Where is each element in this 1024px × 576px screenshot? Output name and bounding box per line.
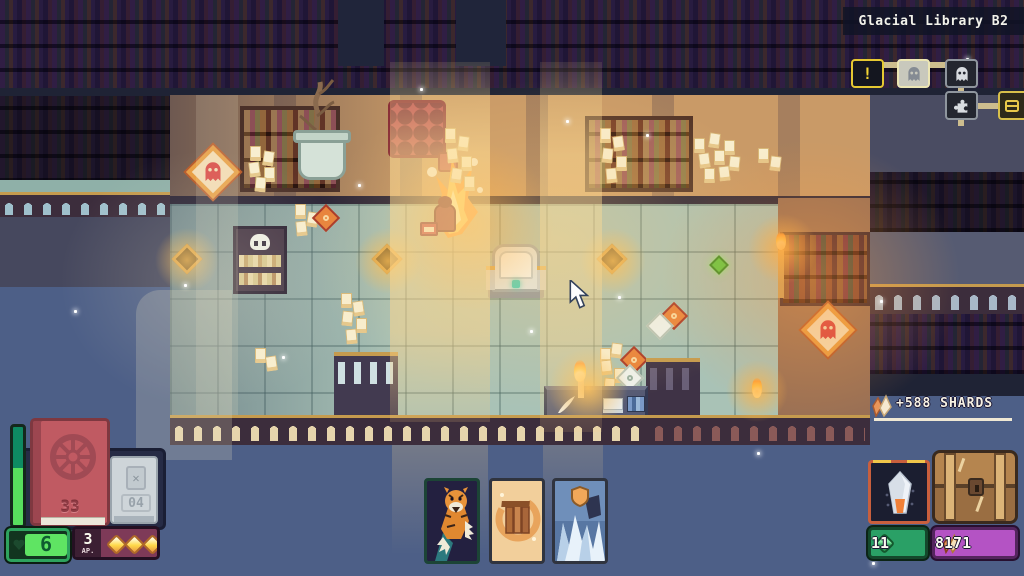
heart-icon [13,539,25,550]
skull-bookshelf [233,226,287,294]
treasure-icon [1005,99,1019,113]
reward-underline [874,418,1012,421]
minimap-room-ghost-current [897,59,930,88]
railing-flame [752,378,762,398]
ghost-banner [800,302,856,358]
desk-books [627,396,645,412]
tiger-art [427,481,477,561]
ap-label: AP. [75,547,101,555]
gate-art [492,481,542,561]
reward-banner: +588 SHARDS [868,392,1018,426]
plant-pot-rim [293,130,351,143]
exclamation-icon: ! [863,64,873,83]
gem-counter: 11 [868,527,928,559]
spell-book [420,222,438,236]
shards-icon [870,392,894,418]
right-inner-shelf [780,232,870,306]
shard-counter: 8171 [932,527,1018,559]
location-title: Glacial Library B2 [859,14,1009,29]
wall-ledge [170,196,870,204]
candle-flame [574,360,586,382]
health-value: 6 [25,534,67,556]
minimap-room-ghost [945,59,978,88]
chest-lock [968,478,984,496]
deck-pages [41,517,105,525]
altar[interactable] [486,236,546,300]
location-title-bar: Glacial Library B2 [843,7,1024,35]
deck-book[interactable]: 33 [30,418,110,526]
hand-card-tiger[interactable] [424,478,480,564]
artifact-frame[interactable] [868,460,930,524]
ghost-icon [955,66,969,81]
right-wall-mid [870,232,1024,284]
shelf-books [239,273,281,285]
deck-rosette [47,431,99,483]
ap-pip [142,534,160,555]
left-lower-wall [0,217,170,287]
left-railing [0,192,178,219]
shelf-books [239,255,281,267]
minimap-room-event: ! [851,59,884,88]
shard-count: 8171 [935,534,971,552]
ghost-icon [907,66,921,81]
hand-card-ice-wall[interactable] [552,478,608,564]
health-bar-fill [13,468,23,525]
wall-recess [338,0,384,66]
card-back-icon: ✕ [126,466,146,490]
minimap: ! [840,50,1024,130]
mouse-cursor [566,280,592,310]
minimap-room-puzzle [945,91,978,120]
bottom-railing [170,415,650,445]
ap-badge: 3 AP. [72,526,160,560]
deck-count: 33 [33,497,107,516]
bookshelf-wall-right-low [870,314,1024,374]
skull-icon [250,234,270,250]
discard-pile[interactable]: ✕ 04 [110,456,158,524]
right-railing [870,284,1024,314]
gem-count: 11 [871,534,889,552]
ghost-banner [185,144,241,200]
altar-gem [512,280,520,288]
bottom-railing [650,415,870,445]
health-badge: 6 [6,528,70,562]
hand-card-gate[interactable] [489,478,545,564]
artifact-crystal-icon [885,471,915,515]
floor-pillar [334,352,398,424]
hero-hood [438,196,452,208]
ap-value: 3 [75,530,101,548]
game-viewport[interactable]: Glacial Library B2 ! +588 SHARDS [0,0,1024,576]
candelabra-flame [776,232,786,250]
wall-recess [456,0,506,66]
puzzle-icon [954,98,970,114]
desk-candle [578,380,584,398]
quill-feather [555,394,577,416]
bookshelf-wall-right [870,172,1024,232]
paper-stack [603,398,623,410]
reward-text: +588 SHARDS [896,396,993,411]
minimap-room-treasure [998,91,1024,120]
ice-wall-art [555,481,605,561]
candelabra [778,250,784,298]
discard-count: 04 [121,494,151,512]
treasure-chest[interactable] [932,450,1018,524]
health-bar [10,424,26,528]
